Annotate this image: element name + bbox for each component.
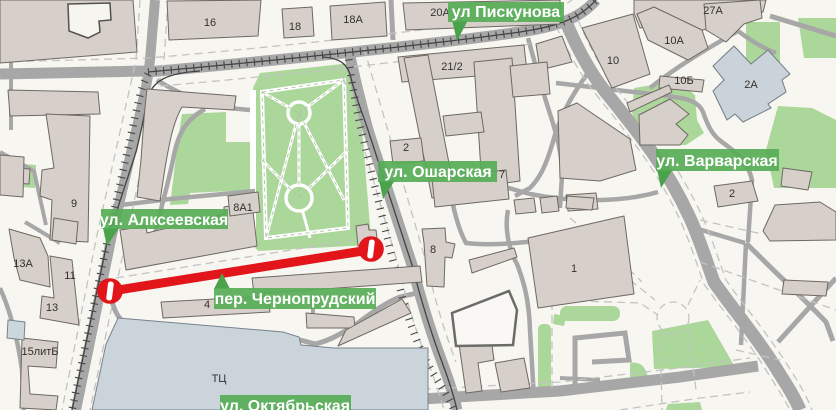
- svg-text:2А: 2А: [744, 79, 758, 91]
- svg-text:18: 18: [289, 21, 301, 33]
- svg-text:8А1: 8А1: [233, 202, 253, 214]
- svg-text:27А: 27А: [703, 5, 723, 17]
- svg-text:ул. Ошарская: ул. Ошарская: [384, 164, 491, 181]
- svg-text:1: 1: [571, 263, 577, 275]
- svg-text:2: 2: [729, 188, 735, 200]
- svg-text:20А: 20А: [430, 7, 450, 19]
- svg-text:ТЦ: ТЦ: [212, 373, 227, 385]
- svg-text:ул Пискунова: ул Пискунова: [452, 4, 561, 21]
- svg-text:13А: 13А: [13, 258, 33, 270]
- svg-text:13: 13: [46, 302, 58, 314]
- svg-text:21/2: 21/2: [441, 61, 462, 73]
- svg-text:2: 2: [403, 142, 409, 154]
- svg-text:9: 9: [71, 198, 77, 210]
- svg-text:18А: 18А: [343, 14, 363, 26]
- svg-text:10: 10: [607, 55, 619, 67]
- svg-text:11: 11: [64, 270, 75, 282]
- svg-text:10А: 10А: [664, 35, 684, 47]
- svg-text:ул. Алксеевская: ул. Алксеевская: [100, 212, 229, 229]
- svg-text:пер. Чернопрудский: пер. Чернопрудский: [215, 291, 376, 308]
- svg-text:16: 16: [204, 17, 216, 29]
- svg-text:7: 7: [499, 169, 505, 181]
- svg-text:8: 8: [430, 244, 436, 256]
- svg-text:4: 4: [204, 299, 210, 311]
- svg-text:10Б: 10Б: [674, 75, 693, 87]
- svg-text:15литБ: 15литБ: [21, 346, 58, 358]
- svg-text:ул. Варварская: ул. Варварская: [656, 153, 777, 170]
- svg-text:ул. Октябрьская: ул. Октябрьская: [220, 398, 350, 410]
